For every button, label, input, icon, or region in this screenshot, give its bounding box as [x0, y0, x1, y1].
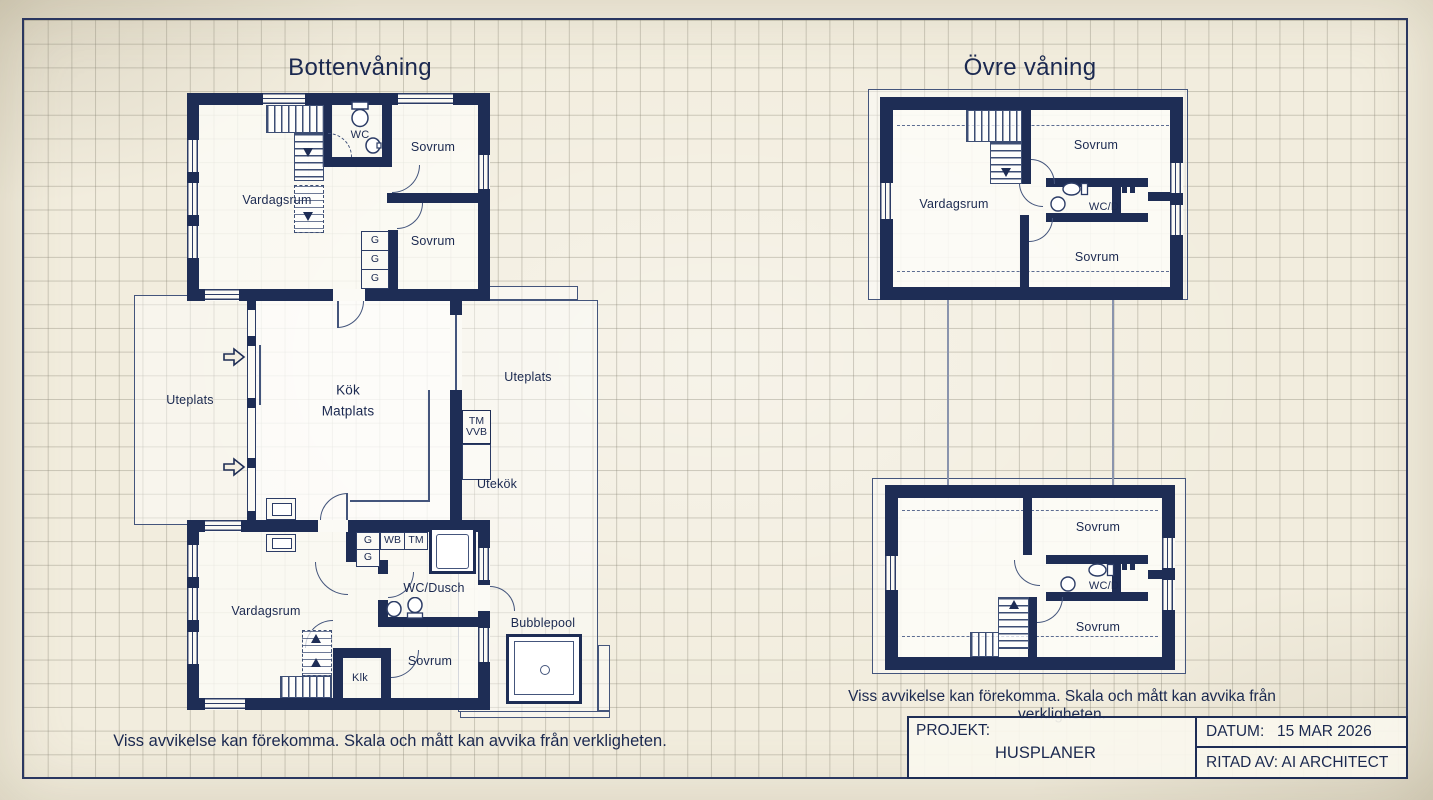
appliance-label-wb: WB: [384, 535, 401, 546]
wall-post: [247, 301, 256, 310]
counter-box: [462, 444, 491, 480]
wall-post: [247, 458, 256, 468]
window-icon: [187, 588, 199, 620]
window-icon: [205, 698, 245, 710]
sink-icon: [386, 601, 402, 618]
appliance-tm: TM: [404, 532, 428, 550]
appliance-label-vvb: VVB: [466, 427, 487, 438]
wall: [378, 617, 478, 627]
connector-line: [947, 300, 949, 485]
wall: [1023, 498, 1032, 555]
window-icon: [478, 628, 490, 662]
projekt-label: PROJEKT:: [916, 722, 990, 740]
room-label-sovrum: Sovrum: [408, 654, 452, 668]
connector-line: [1112, 300, 1114, 485]
room-label-klk: Klk: [352, 672, 368, 684]
cabinet-inner: [272, 503, 292, 516]
window-icon: [398, 93, 453, 105]
wall: [346, 532, 356, 562]
window-icon: [1170, 205, 1183, 235]
closet-label: G: [371, 273, 379, 284]
stair-arrow-icon: [311, 658, 321, 667]
shower-icon: [429, 527, 476, 574]
deck-step-right: [598, 645, 610, 711]
toilet-icon: [405, 597, 425, 619]
cabinet: [266, 498, 296, 520]
wall: [382, 105, 392, 167]
stair-arrow-icon: [303, 148, 313, 157]
window-icon: [478, 548, 490, 580]
window-icon: [205, 520, 241, 532]
closet-g: G: [361, 250, 389, 270]
closet-label: G: [364, 535, 372, 546]
shower-tick: [1122, 187, 1127, 193]
shower-tray: [436, 534, 469, 569]
appliance-wb: WB: [380, 532, 405, 550]
window-icon: [1170, 163, 1183, 193]
closet-label: G: [364, 552, 372, 563]
closet-label: G: [371, 254, 379, 265]
closet-g: G: [361, 269, 389, 289]
room-label-vardagsrum: Vardagsrum: [919, 197, 988, 211]
datum-label: DATUM:: [1206, 723, 1264, 741]
wall: [387, 193, 478, 203]
closet-g: G: [356, 532, 380, 550]
wall: [333, 648, 343, 698]
cabinet: [266, 534, 296, 552]
shower-tick: [1130, 564, 1135, 570]
wall: [1022, 110, 1031, 184]
stairs: [266, 105, 324, 133]
deck-step-top: [488, 286, 578, 300]
wall-post: [247, 398, 256, 408]
room-label-matplats: Matplats: [322, 404, 375, 419]
deck-step-bottom: [460, 711, 610, 718]
window-icon: [880, 183, 893, 219]
wall: [1020, 215, 1029, 300]
window-icon: [187, 226, 199, 258]
sink-icon: [1050, 196, 1066, 212]
room-label-vardagsrum: Vardagsrum: [242, 193, 311, 207]
toilet-icon: [1088, 563, 1115, 577]
door-leaf: [337, 301, 339, 328]
blueprint-sheet: Bottenvåning Övre våning G G G Vardagsru…: [0, 0, 1433, 800]
entry-arrow-icon: [222, 346, 246, 368]
room-label-utekok: Utekök: [477, 477, 517, 491]
stairs: [990, 142, 1022, 184]
deck-uteplats-left: [134, 295, 250, 525]
appliance-label-tm: TM: [408, 535, 423, 546]
projekt-value: HUSPLANER: [995, 744, 1096, 763]
window-icon: [263, 93, 305, 105]
disclaimer-ground: Viss avvikelse kan förekomma. Skala och …: [100, 732, 680, 751]
room-label-sovrum: Sovrum: [1076, 520, 1120, 534]
window-icon: [187, 632, 199, 664]
door-leaf: [346, 493, 348, 520]
shower-tick: [1130, 187, 1135, 193]
stairs: [280, 676, 332, 698]
window-icon: [1162, 580, 1175, 610]
stairs: [294, 133, 324, 181]
wall: [1148, 570, 1162, 579]
entry-arrow-icon: [222, 456, 246, 478]
wall: [1148, 192, 1170, 201]
wall: [1028, 597, 1037, 657]
datum-value: 15 MAR 2026: [1277, 723, 1372, 741]
wall-post: [247, 511, 256, 520]
closet-g: G: [361, 231, 389, 251]
appliance-tm-vvb: TM VVB: [462, 410, 491, 444]
stair-arrow-icon: [1009, 600, 1019, 609]
stair-arrow-icon: [1001, 168, 1011, 177]
room-label-wc-d: WC/D: [1089, 201, 1119, 213]
stairs: [966, 110, 1022, 142]
glass-wall: [247, 301, 256, 520]
room-label-sovrum: Sovrum: [1076, 620, 1120, 634]
wall: [381, 648, 391, 698]
window-icon: [205, 289, 239, 301]
bubblepool-icon: [506, 634, 582, 704]
shower-tick: [1122, 564, 1127, 570]
room-label-sovrum: Sovrum: [1074, 138, 1118, 152]
room-label-wc-d: WC/D: [1089, 580, 1119, 592]
room-label-sovrum: Sovrum: [411, 234, 455, 248]
door-opening: [318, 520, 348, 532]
room-label-wc-dusch: WC/Dusch: [403, 581, 464, 595]
door-opening: [333, 289, 365, 301]
kitchen-counter-line: [350, 500, 429, 502]
closet-g: G: [356, 549, 380, 567]
toilet-icon: [1062, 182, 1089, 196]
window-icon: [478, 155, 490, 189]
sink-icon: [1060, 576, 1076, 592]
stairs: [970, 632, 999, 657]
sliding-door-line: [259, 345, 261, 405]
ceiling-height-line: [897, 271, 1169, 272]
window-icon: [187, 545, 199, 577]
window-icon: [187, 183, 199, 215]
room-label-wc: WC: [351, 129, 370, 141]
wall: [388, 230, 398, 289]
ritad-av: RITAD AV: AI ARCHITECT: [1206, 754, 1388, 772]
title-block-divider: [1195, 746, 1408, 748]
door-opening: [478, 585, 490, 611]
stair-arrow-icon: [303, 212, 313, 221]
window-icon: [187, 140, 199, 172]
stair-arrow-icon: [311, 634, 321, 643]
window-icon: [1162, 538, 1175, 568]
room-label-sovrum: Sovrum: [1075, 250, 1119, 264]
room-label-vardagsrum: Vardagsrum: [231, 604, 300, 618]
closet-label: G: [371, 235, 379, 246]
plan-title-upper: Övre våning: [964, 54, 1097, 82]
kitchen-counter-line: [428, 390, 430, 502]
bubblepool-drain: [540, 665, 550, 675]
cabinet-inner: [272, 538, 292, 549]
window-icon: [885, 556, 898, 590]
wall-post: [247, 336, 256, 346]
room-label-kok: Kök: [336, 383, 360, 398]
room-label-uteplats: Uteplats: [504, 370, 551, 384]
plan-title-ground: Bottenvåning: [288, 54, 432, 82]
toilet-icon: [349, 101, 371, 128]
ceiling-height-line: [897, 125, 1169, 126]
room-label-uteplats: Uteplats: [166, 393, 213, 407]
sliding-door-line: [455, 315, 457, 390]
wall: [1046, 213, 1148, 222]
room-label-bubblepool: Bubblepool: [511, 616, 576, 630]
room-label-sovrum: Sovrum: [411, 140, 455, 154]
